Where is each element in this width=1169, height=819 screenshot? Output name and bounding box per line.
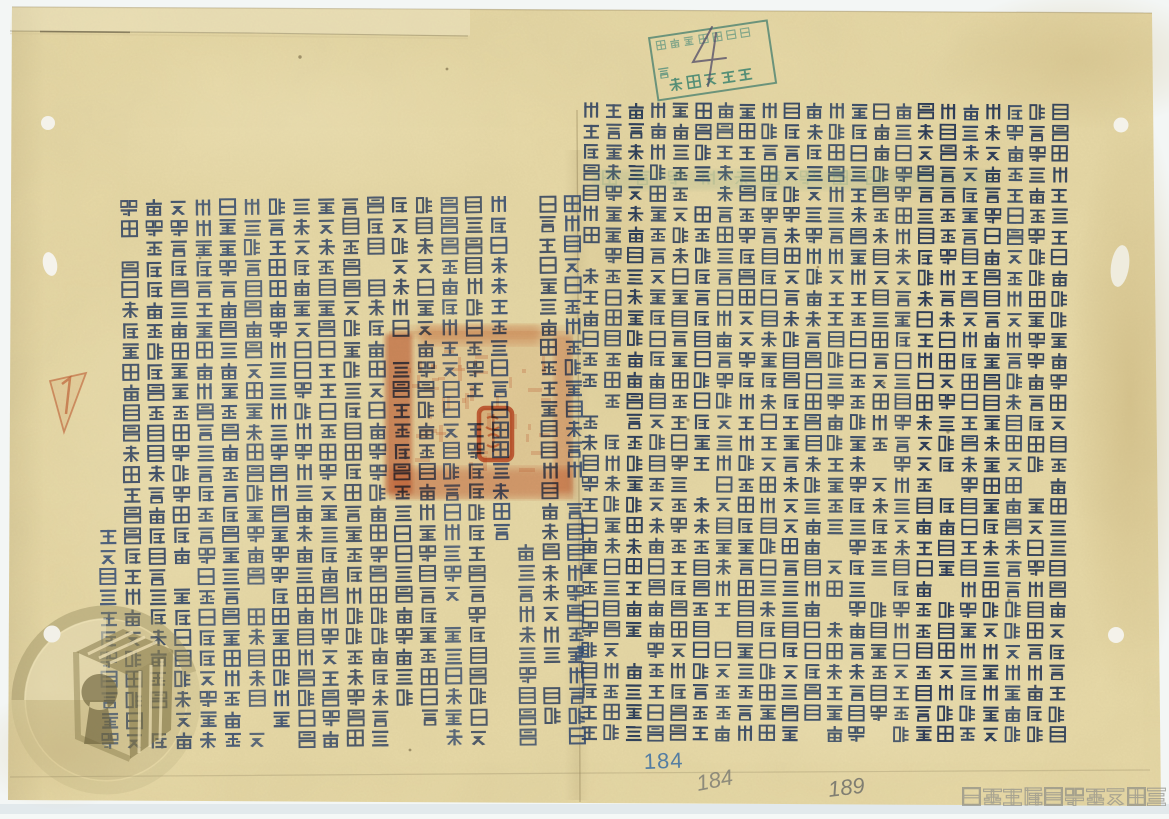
svg-text:189: 189 <box>827 773 866 802</box>
svg-text:184: 184 <box>643 748 684 774</box>
